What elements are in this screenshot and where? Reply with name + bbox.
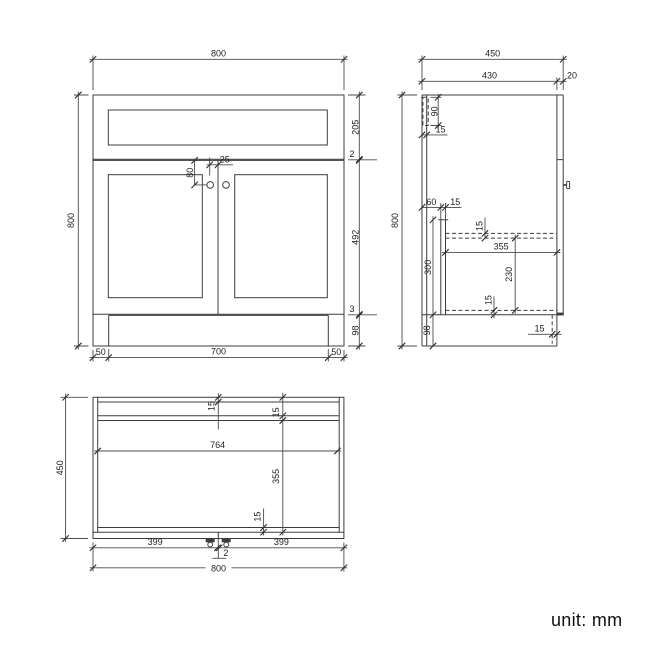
dim-plinth-height: 98 — [351, 325, 361, 335]
dim-side-height: 800 — [390, 213, 400, 228]
dim-back-rail-height: 90 — [429, 106, 439, 116]
dim-top-interior-depth: 355 — [271, 469, 281, 484]
dim-back-panel-thickness: 15 — [435, 124, 445, 134]
dim-shelf-to-base: 230 — [504, 267, 514, 282]
side-view: 450 430 20 800 90 15 60 15 300 15 355 23… — [390, 49, 577, 350]
door-knob-right-top-icon — [222, 539, 230, 541]
dim-top-width: 800 — [211, 563, 226, 573]
dim-partition-offset: 60 — [426, 197, 436, 207]
dim-gap-top: 2 — [349, 149, 354, 159]
dim-front-width: 800 — [211, 49, 226, 59]
door-knob-right-icon — [223, 182, 230, 189]
dim-handle-from-top: 80 — [185, 168, 195, 178]
dim-depth-body: 430 — [482, 71, 497, 81]
dim-side-plinth-height: 98 — [422, 325, 432, 335]
unit-note: unit: mm — [551, 610, 622, 630]
dim-front-rail-thickness: 15 — [252, 512, 262, 522]
dim-top-partition-thickness: 15 — [271, 407, 281, 417]
dim-partition-thickness: 15 — [450, 197, 460, 207]
dim-interior-depth: 355 — [494, 241, 509, 251]
door-bottom-edge — [557, 313, 563, 315]
dim-top-section: 205 — [351, 120, 361, 135]
back-rail-hidden — [423, 97, 428, 125]
door-knob-left-icon — [207, 182, 214, 189]
technical-drawing-page: 800 800 205 2 492 3 98 50 700 50 80 25 4… — [0, 0, 650, 650]
dim-plinth-inset-left: 50 — [96, 347, 106, 357]
dim-front-height: 800 — [66, 213, 76, 228]
dim-plinth-recess: 15 — [534, 323, 544, 333]
dim-gap-bottom: 3 — [349, 304, 354, 314]
dim-partition-height: 300 — [423, 260, 433, 275]
front-view: 800 800 205 2 492 3 98 50 700 50 80 25 — [66, 49, 377, 362]
dim-handle-from-center: 25 — [220, 154, 230, 164]
dim-shelf-thickness: 15 — [475, 221, 485, 231]
dim-top-back-thickness: 15 — [207, 401, 217, 411]
door-knob-left-top-icon — [206, 539, 214, 541]
door-knob-right-top-cap — [224, 542, 229, 547]
top-view: 450 15 15 764 355 15 399 399 2 800 — [55, 393, 348, 574]
dim-plinth-inset-right: 50 — [331, 347, 341, 357]
door-knob-side-icon — [567, 181, 570, 188]
dim-door-thickness: 20 — [567, 71, 577, 81]
dim-plinth-width: 700 — [211, 347, 226, 357]
dim-door-gap: 2 — [223, 548, 228, 558]
dim-door-width-right: 399 — [274, 537, 289, 547]
dim-depth-total: 450 — [485, 49, 500, 59]
dim-door-height: 492 — [351, 230, 361, 245]
vanity-technical-drawing: 800 800 205 2 492 3 98 50 700 50 80 25 4… — [0, 0, 650, 650]
dim-base-thickness: 15 — [483, 295, 493, 305]
dim-interior-width: 764 — [210, 440, 225, 450]
dim-top-depth: 450 — [55, 460, 65, 475]
door-knob-left-top-cap — [208, 542, 213, 547]
dim-door-width-left: 399 — [148, 537, 163, 547]
